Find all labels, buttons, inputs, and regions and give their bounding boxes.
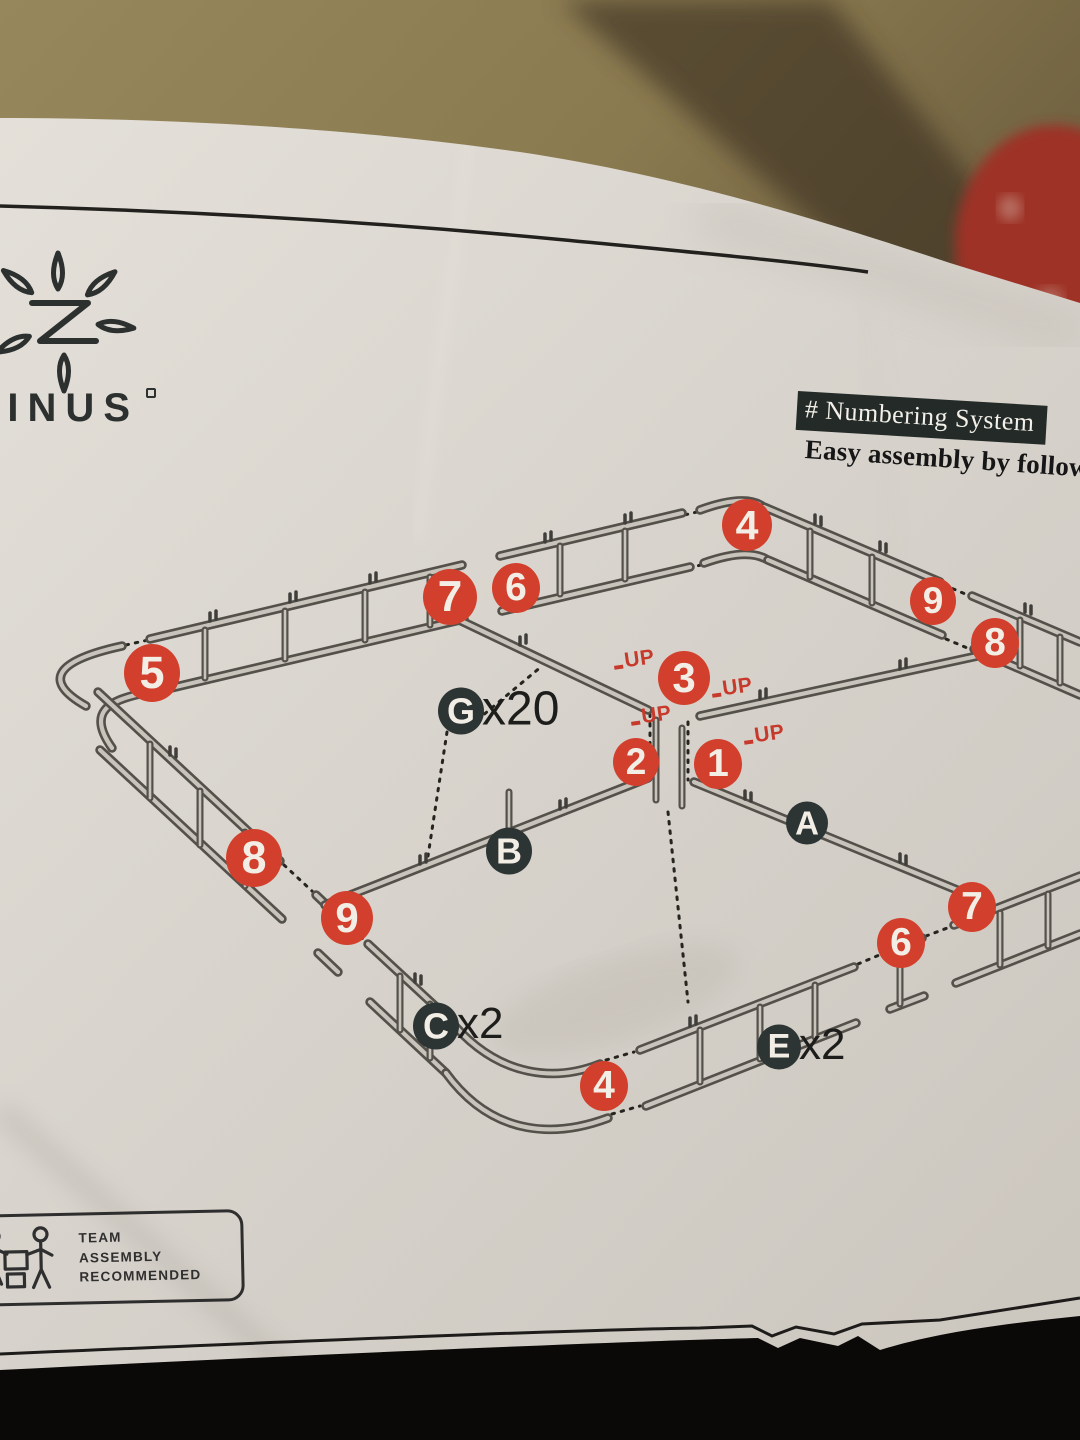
step-marker-4: 4 <box>722 499 772 551</box>
step-marker-6: 6 <box>877 918 925 968</box>
step-marker-1: 1 <box>694 739 742 789</box>
photo-of-instruction-sheet: 47698532189674Gx20BACx2Ex2UPUPUPUP # Num… <box>0 0 1080 1440</box>
team-assembly-badge: TEAM ASSEMBLY RECOMMENDED <box>0 1209 245 1307</box>
step-marker-2: 2 <box>613 738 659 786</box>
part-marker-A: A <box>786 802 828 845</box>
badge-line-2: ASSEMBLY <box>79 1248 201 1267</box>
step-marker-7: 7 <box>948 882 996 932</box>
badge-line-1: TEAM <box>78 1228 200 1247</box>
zinus-wordmark: ZINUS <box>0 386 139 431</box>
part-qty-G: x20 <box>482 681 559 736</box>
up-marker: UP <box>710 673 754 702</box>
step-marker-6: 6 <box>492 563 540 613</box>
part-qty-E: x2 <box>799 1020 845 1070</box>
up-arrow-icon <box>614 664 623 669</box>
part-qty-C: x2 <box>457 999 503 1049</box>
part-marker-C: C <box>413 1003 459 1050</box>
up-marker: UP <box>742 720 786 749</box>
up-arrow-icon <box>744 739 753 744</box>
step-marker-9: 9 <box>910 577 956 625</box>
trademark-mark <box>146 388 156 398</box>
up-arrow-icon <box>631 720 640 725</box>
part-marker-E: E <box>757 1025 801 1070</box>
up-marker: UP <box>629 701 673 730</box>
part-marker-G: G <box>438 688 484 735</box>
step-marker-8: 8 <box>971 618 1019 668</box>
up-arrow-icon <box>712 692 721 697</box>
up-marker: UP <box>612 645 656 674</box>
step-marker-3: 3 <box>658 651 710 705</box>
step-marker-8: 8 <box>226 829 282 887</box>
step-marker-4: 4 <box>580 1061 628 1111</box>
step-marker-9: 9 <box>321 891 373 945</box>
step-marker-5: 5 <box>124 644 180 702</box>
team-carry-icon <box>0 1225 66 1295</box>
part-marker-B: B <box>486 828 532 875</box>
step-marker-7: 7 <box>423 569 477 625</box>
badge-line-3: RECOMMENDED <box>79 1267 201 1286</box>
